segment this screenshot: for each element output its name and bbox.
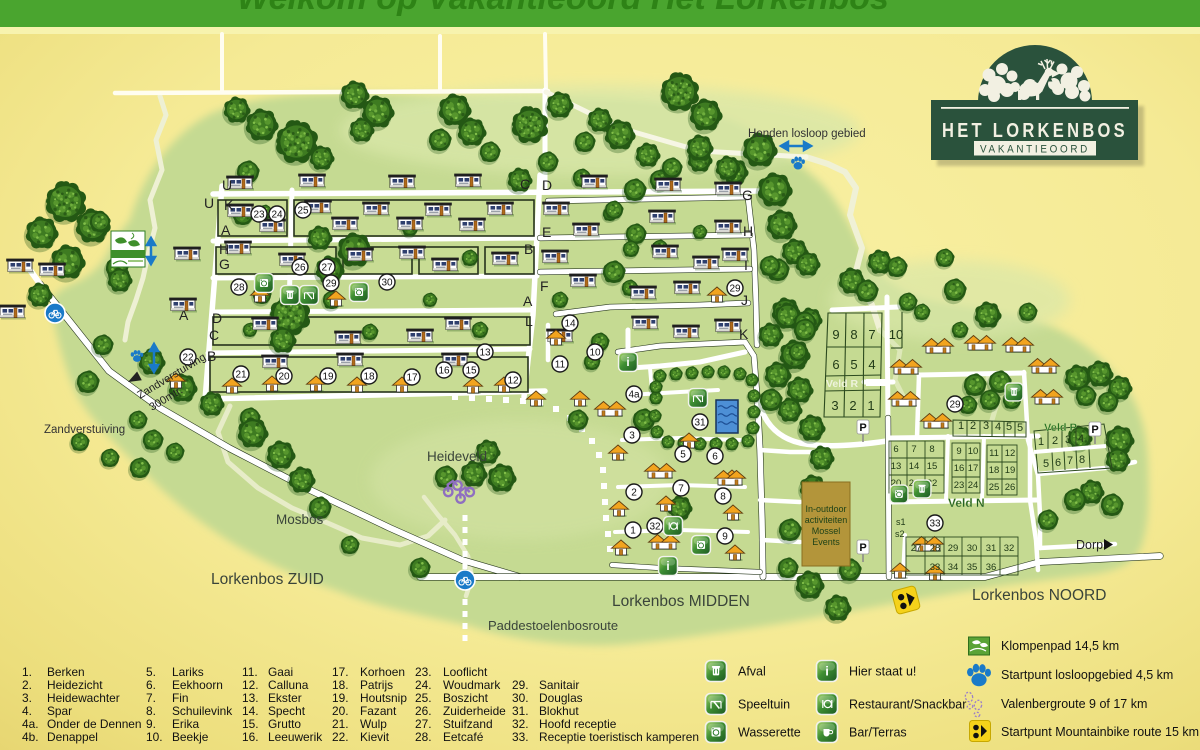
svg-text:C: C [520,176,530,192]
svg-text:11: 11 [555,360,566,371]
svg-text:s2: s2 [895,529,905,539]
svg-text:Erika: Erika [172,717,199,731]
svg-text:14.: 14. [242,704,259,718]
svg-text:8: 8 [850,327,857,342]
svg-text:2.: 2. [22,678,32,692]
svg-text:29: 29 [949,400,961,411]
svg-text:27: 27 [321,263,333,274]
svg-text:24: 24 [271,210,283,221]
svg-text:1.: 1. [22,665,32,679]
svg-text:H: H [219,241,229,257]
svg-text:16: 16 [438,366,450,377]
svg-text:8: 8 [929,444,934,455]
svg-text:29.: 29. [512,678,529,692]
svg-text:5: 5 [850,357,857,372]
svg-text:Leeuwerik: Leeuwerik [268,730,322,744]
svg-text:8: 8 [720,492,726,503]
svg-text:22.: 22. [332,730,349,744]
svg-text:Spar: Spar [47,704,72,718]
svg-text:Grutto: Grutto [268,717,301,731]
svg-text:Beekje: Beekje [172,730,209,744]
svg-text:Restaurant/Snackbar: Restaurant/Snackbar [849,698,966,712]
svg-text:Patrijs: Patrijs [360,678,393,692]
svg-text:i: i [626,356,629,369]
svg-text:U: U [222,177,232,193]
svg-text:Blokhut: Blokhut [539,704,579,718]
svg-text:4: 4 [868,357,875,372]
svg-text:Fin: Fin [172,691,189,705]
svg-text:23: 23 [253,210,265,221]
svg-text:36: 36 [986,562,997,573]
svg-text:12.: 12. [242,678,259,692]
svg-text:23.: 23. [415,665,432,679]
svg-text:4b.: 4b. [22,730,39,744]
svg-text:Veld R: Veld R [826,378,859,390]
svg-text:K: K [224,197,234,213]
svg-text:C: C [209,327,219,343]
svg-text:L: L [525,313,533,329]
svg-text:A: A [523,293,533,309]
svg-text:18.: 18. [332,678,349,692]
svg-text:A: A [221,222,231,238]
svg-text:18: 18 [363,372,375,383]
svg-text:Korhoen: Korhoen [360,665,405,679]
svg-text:Startpunt Mountainbike route 1: Startpunt Mountainbike route 15 km [1001,725,1199,739]
svg-text:14: 14 [909,461,920,472]
svg-text:A: A [179,307,189,323]
svg-text:33: 33 [930,562,941,573]
svg-text:5: 5 [1006,421,1012,433]
svg-text:20: 20 [278,372,290,383]
svg-text:17.: 17. [332,665,349,679]
svg-text:D: D [212,310,222,326]
svg-text:Valenbergroute 9 of 17 km: Valenbergroute 9 of 17 km [1001,697,1147,711]
svg-text:Heidewachter: Heidewachter [47,691,120,705]
svg-text:5: 5 [680,450,686,461]
svg-text:Sanitair: Sanitair [539,678,579,692]
svg-text:Heideveld: Heideveld [427,449,487,464]
svg-text:4.: 4. [22,704,32,718]
svg-text:Gaai: Gaai [268,665,293,679]
svg-text:Kievit: Kievit [360,730,390,744]
svg-text:Lariks: Lariks [172,665,204,679]
svg-text:Fazant: Fazant [360,704,397,718]
svg-text:1: 1 [958,420,964,432]
svg-text:Ekster: Ekster [268,691,302,705]
svg-text:3: 3 [831,398,838,413]
svg-text:K: K [739,326,749,342]
svg-text:I: I [744,257,748,273]
svg-text:Speeltuin: Speeltuin [738,698,790,712]
svg-text:31: 31 [694,418,706,429]
svg-text:Lorkenbos MIDDEN: Lorkenbos MIDDEN [612,593,750,610]
svg-text:Dorp: Dorp [1076,538,1103,552]
svg-text:12: 12 [507,376,519,387]
svg-text:Eetcafé: Eetcafé [443,730,484,744]
svg-text:3: 3 [629,431,635,442]
svg-text:D: D [542,177,552,193]
svg-text:Klompenpad 14,5 km: Klompenpad 14,5 km [1001,639,1119,653]
svg-text:Denappel: Denappel [47,730,98,744]
svg-text:7: 7 [911,444,916,455]
svg-text:B: B [207,348,216,364]
svg-text:13.: 13. [242,691,259,705]
svg-text:13: 13 [891,461,902,472]
svg-text:5.: 5. [146,665,156,679]
svg-text:8: 8 [1079,454,1085,466]
svg-text:Hoofd receptie: Hoofd receptie [539,717,617,731]
svg-text:HET LORKENBOS: HET LORKENBOS [942,120,1128,142]
svg-text:9: 9 [722,532,728,543]
svg-text:H: H [743,223,753,239]
svg-text:15: 15 [465,366,477,377]
svg-text:21.: 21. [332,717,349,731]
svg-text:Schuilevink: Schuilevink [172,704,232,718]
svg-text:F: F [540,278,549,294]
svg-text:28.: 28. [415,730,432,744]
svg-text:16.: 16. [242,730,259,744]
svg-text:6: 6 [712,452,718,463]
svg-text:30.: 30. [512,691,529,705]
svg-text:33.: 33. [512,730,529,744]
svg-text:Mossel: Mossel [812,526,841,536]
svg-text:Startpunt losloopgebied 4,5 km: Startpunt losloopgebied 4,5 km [1001,668,1173,682]
svg-text:Stuifzand: Stuifzand [443,717,493,731]
svg-text:Veld P: Veld P [1044,422,1077,434]
svg-text:G: G [219,256,230,272]
svg-text:P: P [859,542,866,554]
svg-text:30: 30 [967,543,978,554]
svg-text:E: E [542,224,551,240]
svg-text:4: 4 [1078,433,1084,445]
svg-text:4: 4 [995,421,1001,433]
svg-text:26: 26 [1005,482,1016,493]
svg-text:11: 11 [989,448,999,459]
svg-text:7: 7 [868,327,875,342]
svg-text:29: 29 [948,543,959,554]
svg-text:24.: 24. [415,678,432,692]
svg-text:G: G [742,187,753,203]
svg-text:Mosbos: Mosbos [276,512,324,527]
svg-text:Looflicht: Looflicht [443,665,488,679]
svg-text:11.: 11. [242,665,258,679]
svg-text:8.: 8. [146,704,156,718]
svg-text:Heidezicht: Heidezicht [47,678,103,692]
svg-text:26.: 26. [415,704,432,718]
svg-text:Zuiderheide: Zuiderheide [443,704,506,718]
svg-text:s1: s1 [896,517,906,527]
svg-text:P: P [859,422,866,434]
svg-text:10: 10 [889,327,903,342]
svg-text:32: 32 [1004,543,1015,554]
svg-text:2: 2 [631,488,637,499]
svg-text:16: 16 [954,463,965,474]
svg-text:18: 18 [989,465,1000,476]
svg-text:29: 29 [729,284,741,295]
svg-text:27.: 27. [415,717,432,731]
svg-text:5: 5 [1043,458,1049,470]
svg-text:7: 7 [1067,455,1073,467]
svg-text:In-outdoor: In-outdoor [805,504,846,514]
svg-text:35: 35 [967,562,978,573]
svg-text:25: 25 [989,482,1000,493]
svg-text:9: 9 [832,327,839,342]
svg-text:Calluna: Calluna [268,678,309,692]
svg-text:activiteiten: activiteiten [805,515,848,525]
svg-text:Afval: Afval [738,665,766,679]
svg-text:Veld N: Veld N [948,496,985,510]
svg-text:15: 15 [927,461,938,472]
svg-text:9.: 9. [146,717,156,731]
svg-text:Events: Events [812,537,840,547]
svg-text:7.: 7. [146,691,156,705]
svg-text:17: 17 [406,373,418,384]
svg-text:Lorkenbos NOORD: Lorkenbos NOORD [972,587,1106,604]
svg-text:10: 10 [589,348,601,359]
svg-text:19: 19 [1005,465,1016,476]
svg-text:Paddestoelenbosroute: Paddestoelenbosroute [488,618,618,633]
svg-text:28: 28 [930,543,941,554]
svg-text:32: 32 [649,522,661,533]
svg-text:6: 6 [893,444,898,455]
svg-text:32.: 32. [512,717,529,731]
svg-text:2: 2 [849,398,856,413]
svg-text:VAKANTIEOORD: VAKANTIEOORD [980,144,1090,156]
svg-text:2: 2 [1052,435,1058,447]
svg-text:19.: 19. [332,691,349,705]
svg-text:Eekhoorn: Eekhoorn [172,678,223,692]
svg-text:14: 14 [564,319,576,330]
svg-text:29: 29 [325,279,337,290]
svg-text:Lorkenbos ZUID: Lorkenbos ZUID [211,571,324,588]
svg-text:3: 3 [1065,434,1071,446]
svg-text:20.: 20. [332,704,349,718]
svg-text:i: i [825,664,829,679]
svg-text:10: 10 [968,446,979,457]
svg-text:Boszicht: Boszicht [443,691,489,705]
svg-text:Hier staat u!: Hier staat u! [849,665,916,679]
svg-text:Receptie toeristisch kamperen: Receptie toeristisch kamperen [539,730,699,744]
svg-text:2: 2 [970,420,976,432]
svg-text:6: 6 [1055,457,1061,469]
svg-text:17: 17 [968,463,979,474]
svg-text:23: 23 [954,480,965,491]
svg-text:6: 6 [832,357,839,372]
svg-text:U: U [204,195,214,211]
svg-text:Wulp: Wulp [360,717,387,731]
svg-text:21: 21 [235,370,247,381]
svg-text:28: 28 [233,283,245,294]
svg-text:4a.: 4a. [22,717,39,731]
svg-text:7: 7 [678,484,684,495]
svg-text:Welkom op Vakantieoord Het Lor: Welkom op Vakantieoord Het Lorkenbos [237,0,889,17]
svg-text:30: 30 [381,278,393,289]
svg-text:24: 24 [968,480,979,491]
svg-text:12: 12 [1005,448,1016,459]
svg-text:Douglas: Douglas [539,691,583,705]
svg-text:i: i [666,560,669,573]
svg-text:Houtsnip: Houtsnip [360,691,407,705]
svg-text:J: J [741,292,748,308]
svg-text:1: 1 [867,398,874,413]
svg-text:10.: 10. [146,730,163,744]
svg-text:Woudmark: Woudmark [443,678,500,692]
svg-text:25: 25 [297,206,309,217]
svg-text:27: 27 [911,543,922,554]
svg-text:4a: 4a [628,390,640,401]
svg-text:3: 3 [983,420,989,432]
svg-text:Berken: Berken [47,665,85,679]
svg-text:Onder de Dennen: Onder de Dennen [47,717,142,731]
svg-text:5: 5 [1017,422,1023,434]
svg-text:26: 26 [294,263,306,274]
svg-text:15.: 15. [242,717,259,731]
svg-text:1: 1 [630,526,636,537]
svg-text:25.: 25. [415,691,432,705]
svg-text:34: 34 [948,562,959,573]
svg-text:31.: 31. [512,704,529,718]
svg-text:1: 1 [1038,436,1044,448]
svg-text:3.: 3. [22,691,32,705]
svg-text:Bar/Terras: Bar/Terras [849,726,907,740]
svg-text:9: 9 [956,446,961,457]
svg-text:Wasserette: Wasserette [738,726,801,740]
svg-text:31: 31 [986,543,997,554]
svg-text:P: P [1091,424,1098,436]
svg-text:6.: 6. [146,678,156,692]
svg-text:33: 33 [929,519,941,530]
svg-text:19: 19 [322,372,334,383]
svg-text:B: B [524,241,533,257]
svg-text:Specht: Specht [268,704,306,718]
svg-text:Honden losloop gebied: Honden losloop gebied [748,128,866,140]
svg-text:13: 13 [479,348,491,359]
svg-text:Zandverstuiving: Zandverstuiving [44,424,125,436]
